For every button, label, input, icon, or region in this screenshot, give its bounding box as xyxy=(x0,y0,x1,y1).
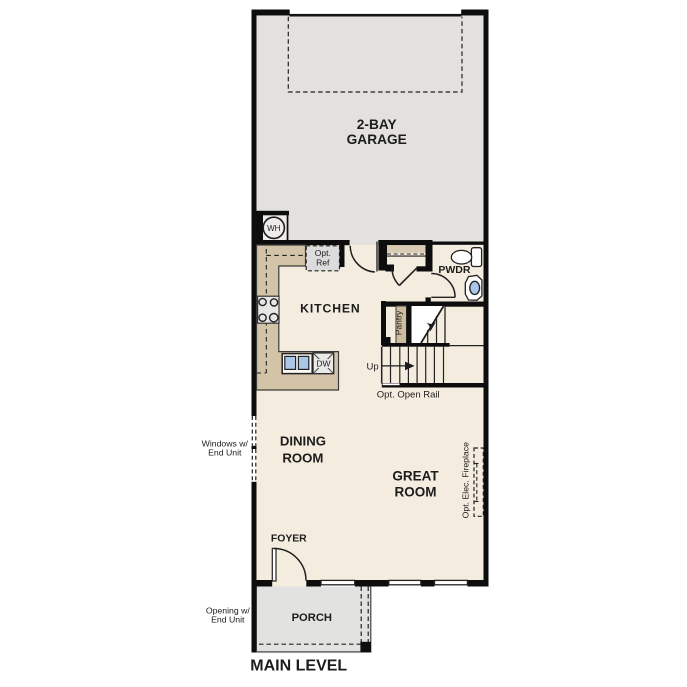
svg-text:MAIN LEVEL: MAIN LEVEL xyxy=(250,658,347,675)
svg-text:Opt. Elec. Fireplace: Opt. Elec. Fireplace xyxy=(461,442,471,518)
svg-text:GARAGE: GARAGE xyxy=(347,132,407,147)
svg-text:Pantry: Pantry xyxy=(393,310,403,335)
svg-text:2-BAY: 2-BAY xyxy=(357,117,397,132)
svg-text:PWDR: PWDR xyxy=(438,264,470,276)
svg-text:Opt.: Opt. xyxy=(315,248,331,258)
svg-text:Ref: Ref xyxy=(316,257,330,267)
svg-text:GREAT: GREAT xyxy=(392,469,439,484)
svg-text:FOYER: FOYER xyxy=(271,533,307,544)
svg-text:DW: DW xyxy=(316,359,330,369)
svg-text:WH: WH xyxy=(267,224,281,233)
svg-text:ROOM: ROOM xyxy=(282,451,323,466)
svg-text:KITCHEN: KITCHEN xyxy=(300,301,360,315)
svg-text:End Unit: End Unit xyxy=(211,615,245,625)
svg-text:End Unit: End Unit xyxy=(208,448,242,458)
svg-text:DINING: DINING xyxy=(280,433,326,448)
svg-text:PORCH: PORCH xyxy=(292,612,332,624)
svg-text:Up: Up xyxy=(367,362,379,373)
svg-text:Opt. Open Rail: Opt. Open Rail xyxy=(377,390,440,401)
svg-text:ROOM: ROOM xyxy=(395,485,437,500)
